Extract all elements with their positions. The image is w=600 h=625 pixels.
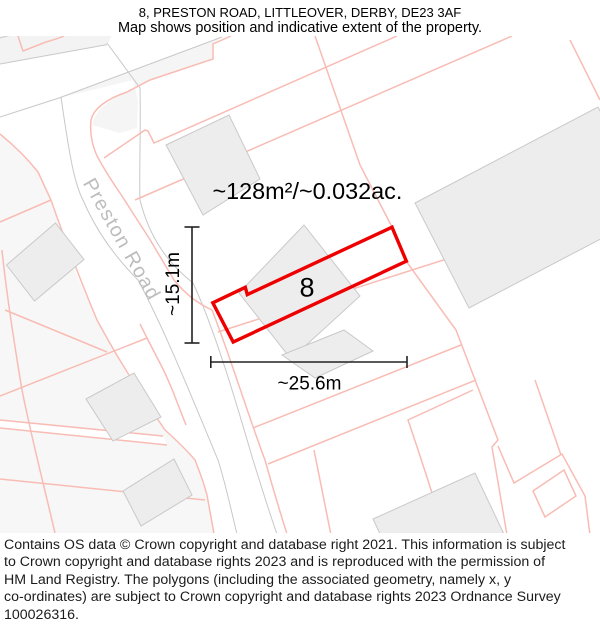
svg-text:~15.1m: ~15.1m (163, 252, 184, 316)
svg-text:~25.6m: ~25.6m (278, 374, 342, 395)
svg-text:~128m²/~0.032ac.: ~128m²/~0.032ac. (213, 178, 403, 204)
svg-text:8: 8 (299, 273, 314, 303)
